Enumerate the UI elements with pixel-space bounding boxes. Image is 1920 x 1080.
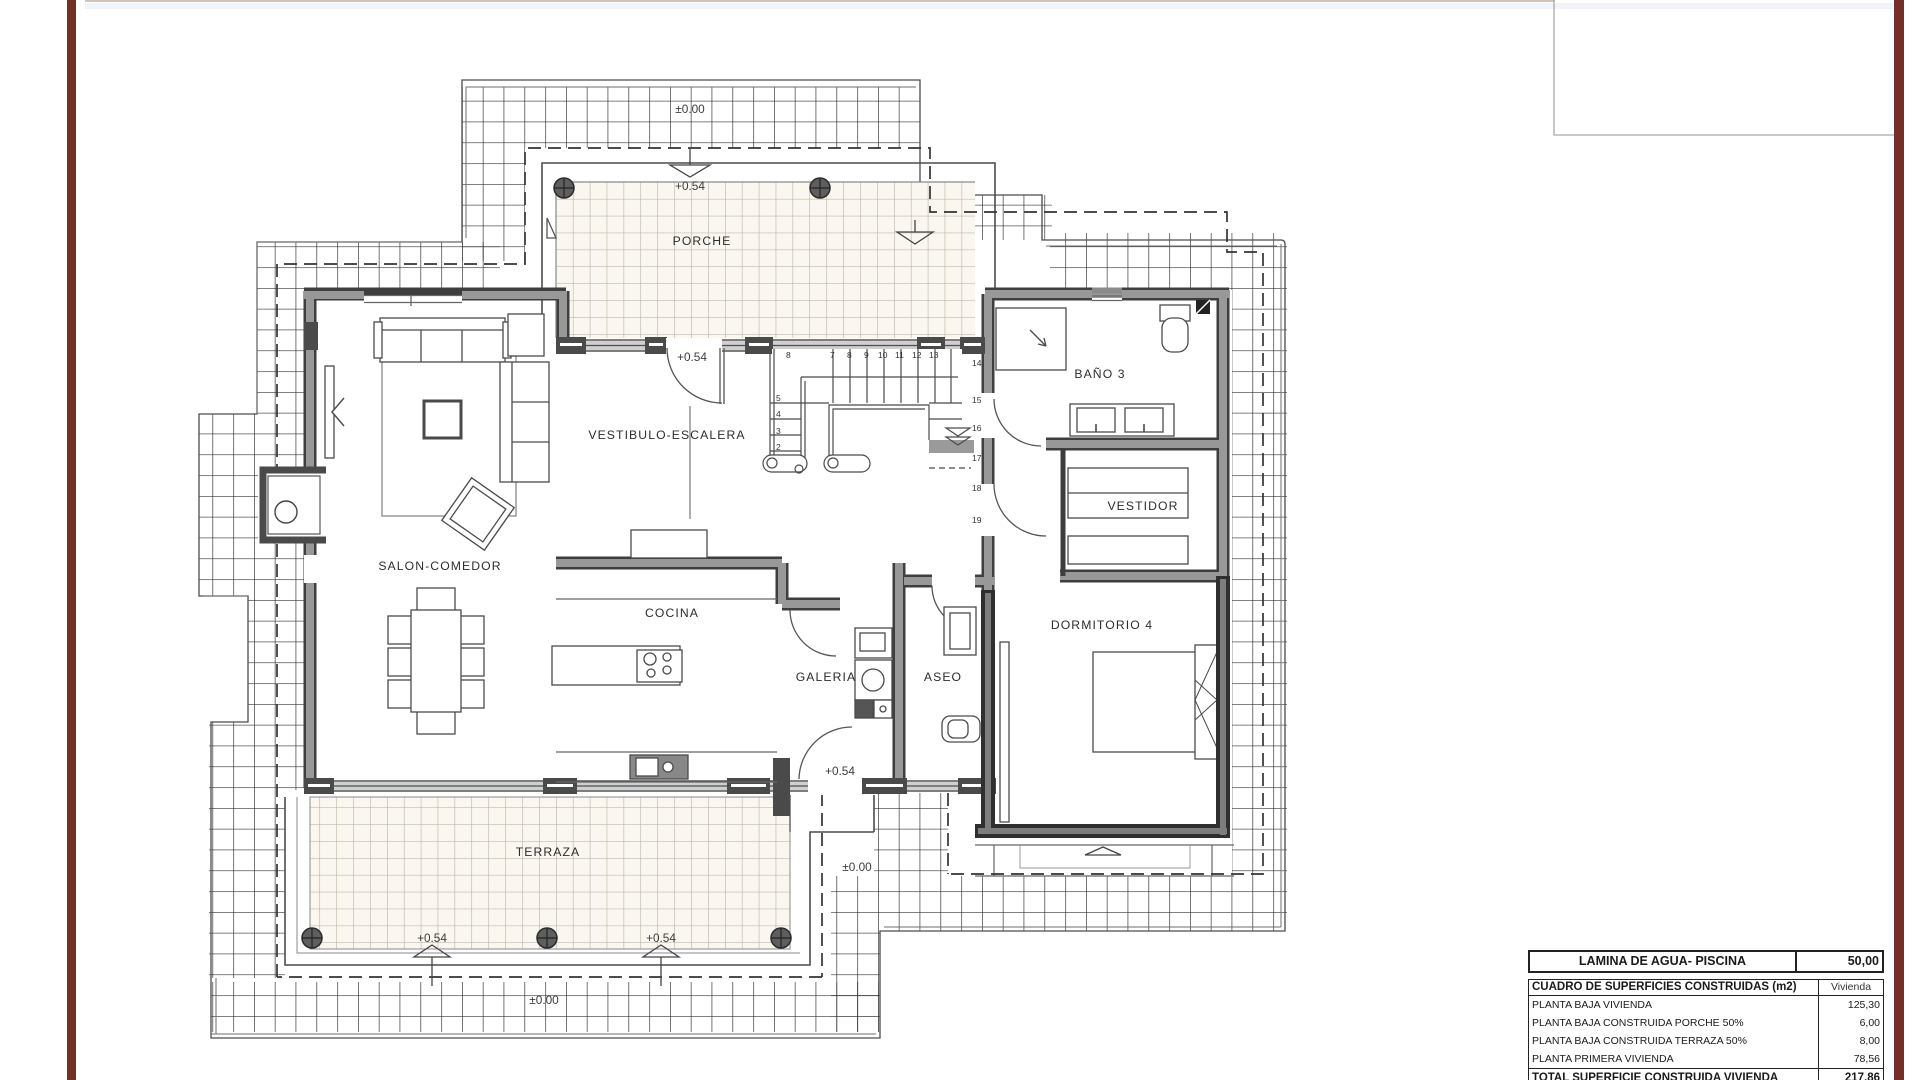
svg-text:PORCHE: PORCHE [673,234,732,248]
svg-text:DORMITORIO 4: DORMITORIO 4 [1051,618,1153,632]
svg-text:±0.00: ±0.00 [842,860,872,874]
svg-text:14: 14 [972,358,982,368]
svg-text:+0.54: +0.54 [417,931,447,945]
svg-text:9: 9 [864,350,869,360]
svg-text:VESTIBULO-ESCALERA: VESTIBULO-ESCALERA [588,428,745,442]
svg-text:16: 16 [972,423,982,433]
svg-text:GALERIA: GALERIA [796,670,857,684]
svg-text:12: 12 [912,350,922,360]
svg-text:±0.00: ±0.00 [675,102,705,116]
svg-text:COCINA: COCINA [645,606,699,620]
svg-text:15: 15 [972,395,982,405]
svg-text:8: 8 [847,350,852,360]
svg-text:19: 19 [972,515,982,525]
svg-text:11: 11 [895,350,904,360]
svg-text:4: 4 [776,409,781,419]
svg-text:17: 17 [972,453,982,463]
svg-text:BAÑO 3: BAÑO 3 [1074,367,1125,381]
svg-text:+0.54: +0.54 [677,350,707,364]
svg-text:+0.54: +0.54 [675,179,705,193]
svg-text:3: 3 [776,426,781,436]
svg-text:7: 7 [830,350,835,360]
svg-text:8: 8 [786,350,791,360]
svg-text:+0.54: +0.54 [646,931,676,945]
svg-text:2: 2 [776,442,781,452]
svg-text:10: 10 [878,350,888,360]
svg-text:ASEO: ASEO [924,670,962,684]
svg-text:SALON-COMEDOR: SALON-COMEDOR [378,559,501,573]
svg-text:VESTIDOR: VESTIDOR [1107,499,1178,513]
svg-text:TERRAZA: TERRAZA [516,845,581,859]
svg-text:±0.00: ±0.00 [529,993,559,1007]
svg-text:13: 13 [929,350,939,360]
svg-text:+0.54: +0.54 [825,764,855,778]
svg-text:18: 18 [972,483,982,493]
svg-text:5: 5 [776,393,781,403]
